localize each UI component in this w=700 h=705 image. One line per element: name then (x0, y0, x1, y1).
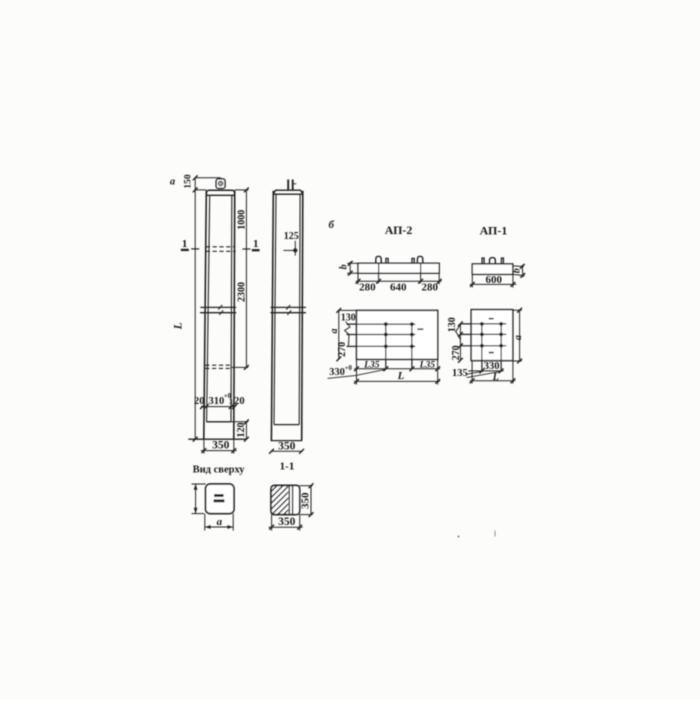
svg-text:280: 280 (422, 282, 439, 294)
svg-text:1: 1 (253, 238, 259, 250)
svg-text:a: a (170, 176, 175, 187)
svg-text:640: 640 (390, 282, 407, 294)
svg-text:130: 130 (341, 313, 356, 324)
svg-text:600: 600 (485, 274, 502, 286)
svg-text:2300: 2300 (236, 282, 247, 302)
svg-text:350: 350 (278, 516, 296, 528)
svg-text:+0: +0 (345, 365, 353, 372)
svg-text:150: 150 (184, 174, 194, 189)
svg-text:330: 330 (329, 367, 345, 378)
svg-text:280: 280 (359, 282, 376, 294)
svg-text:1000: 1000 (236, 210, 247, 230)
svg-text:б: б (328, 219, 334, 231)
svg-text:270: 270 (337, 342, 348, 357)
svg-text:АП-1: АП-1 (480, 223, 508, 237)
svg-text:135: 135 (452, 368, 468, 379)
svg-text:L35: L35 (419, 361, 436, 371)
svg-text:L: L (397, 370, 405, 382)
svg-text:a: a (329, 329, 340, 334)
svg-text:350: 350 (299, 492, 311, 509)
svg-text:L: L (173, 322, 185, 330)
svg-text:270: 270 (451, 345, 462, 360)
svg-text:b: b (511, 268, 522, 273)
svg-text:a: a (217, 516, 223, 528)
svg-text:120: 120 (236, 423, 247, 438)
svg-text:125: 125 (284, 231, 299, 242)
svg-text:310: 310 (209, 396, 225, 407)
svg-text:1-1: 1-1 (280, 461, 295, 473)
svg-text:350: 350 (212, 440, 230, 452)
svg-text:350: 350 (278, 441, 296, 453)
svg-text:b: b (339, 264, 350, 269)
svg-text:1: 1 (182, 238, 188, 250)
svg-text:a: a (513, 335, 524, 340)
svg-text:L: L (492, 372, 499, 383)
svg-text:L35: L35 (363, 361, 380, 371)
svg-text:Вид сверху: Вид сверху (193, 464, 246, 475)
svg-text:АП-2: АП-2 (385, 223, 413, 237)
